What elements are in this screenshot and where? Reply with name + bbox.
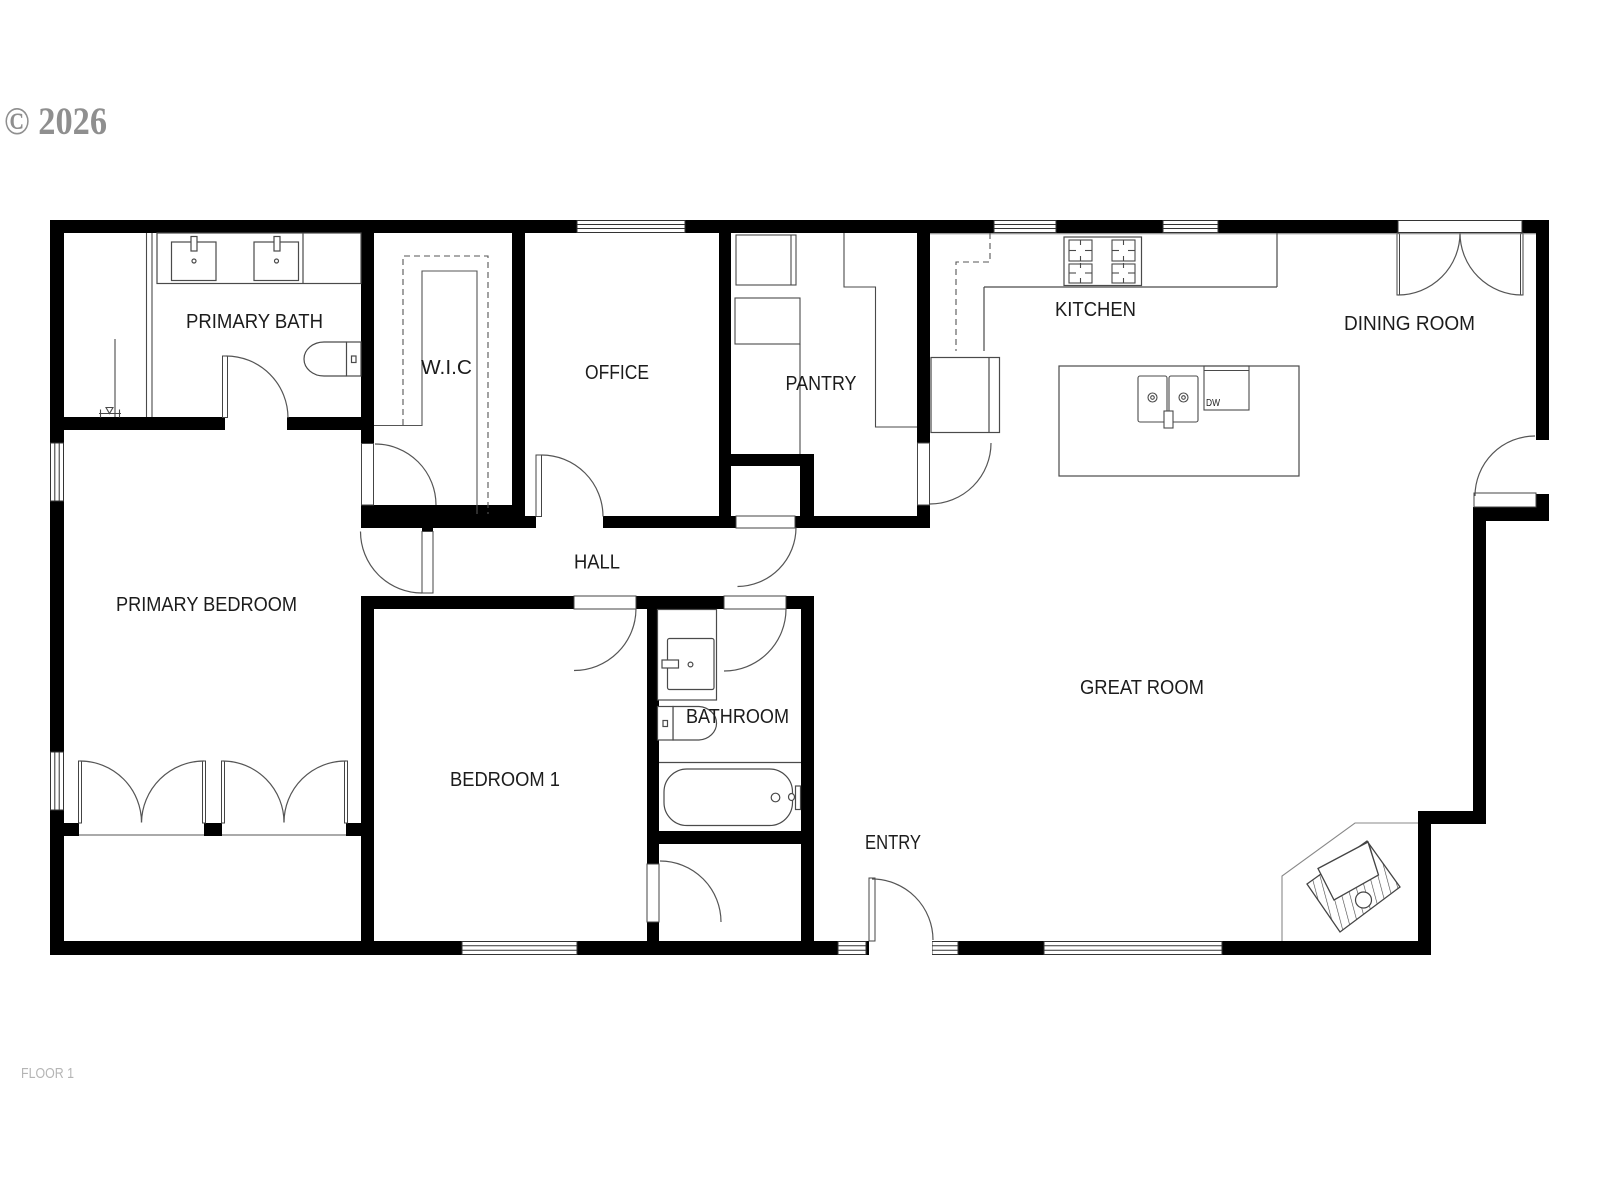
svg-text:OFFICE: OFFICE [585, 361, 649, 384]
svg-text:PRIMARY BEDROOM: PRIMARY BEDROOM [116, 593, 297, 616]
svg-text:DINING ROOM: DINING ROOM [1344, 312, 1475, 335]
svg-text:BEDROOM 1: BEDROOM 1 [450, 768, 560, 791]
svg-text:HALL: HALL [574, 551, 620, 574]
svg-text:FLOOR 1: FLOOR 1 [21, 1065, 74, 1082]
svg-text:KITCHEN: KITCHEN [1055, 298, 1136, 321]
svg-text:BATHROOM: BATHROOM [686, 705, 789, 728]
svg-text:PRIMARY BATH: PRIMARY BATH [186, 310, 323, 333]
svg-text:W.I.C: W.I.C [421, 356, 472, 379]
svg-text:DW: DW [1206, 398, 1220, 409]
svg-text:© 2026: © 2026 [4, 100, 107, 143]
svg-text:ENTRY: ENTRY [865, 831, 921, 854]
svg-text:PANTRY: PANTRY [786, 372, 857, 395]
svg-text:GREAT ROOM: GREAT ROOM [1080, 676, 1204, 699]
